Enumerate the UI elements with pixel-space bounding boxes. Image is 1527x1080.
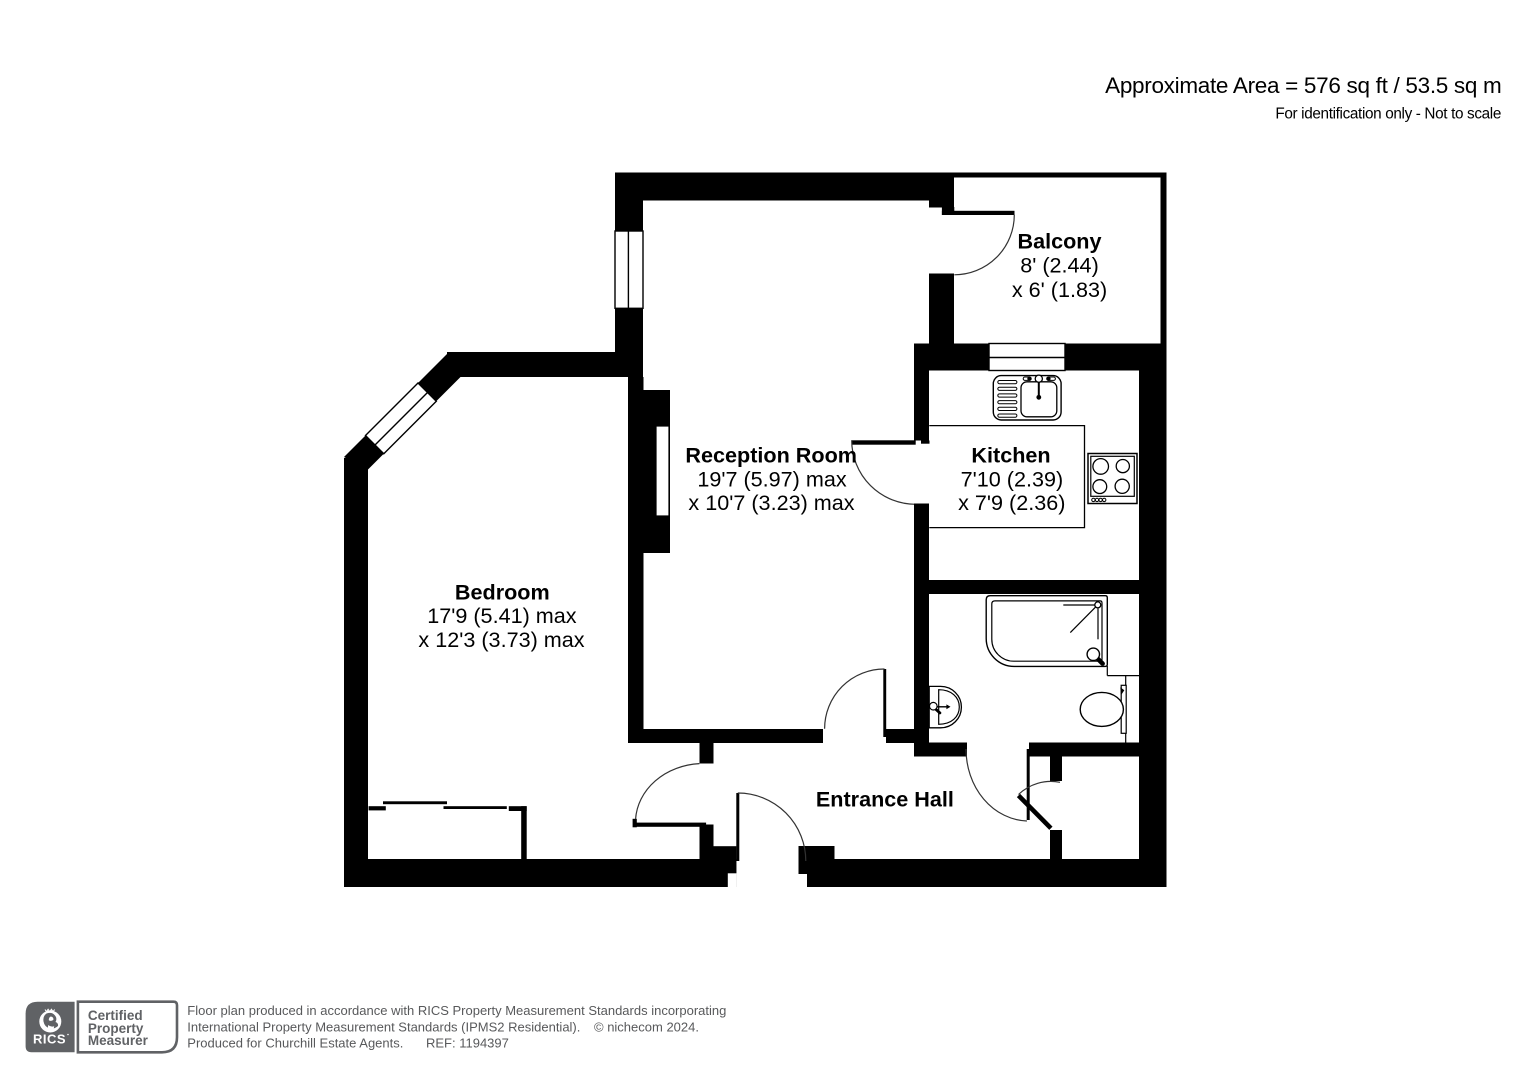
svg-text:19'7 (5.97) max: 19'7 (5.97) max (697, 467, 847, 492)
svg-text:x 12'3 (3.73) max: x 12'3 (3.73) max (418, 627, 584, 652)
svg-text:x 7'9 (2.36): x 7'9 (2.36) (958, 490, 1065, 515)
svg-text:Entrance Hall: Entrance Hall (816, 787, 954, 812)
svg-text:Reception Room: Reception Room (685, 443, 857, 468)
svg-text:x 10'7 (3.23) max: x 10'7 (3.23) max (688, 490, 854, 515)
svg-text:x 6' (1.83): x 6' (1.83) (1012, 277, 1107, 302)
svg-text:17'9 (5.41) max: 17'9 (5.41) max (427, 603, 577, 628)
svg-text:Kitchen: Kitchen (971, 443, 1050, 468)
svg-text:8' (2.44): 8' (2.44) (1020, 252, 1099, 277)
svg-text:Produced for Churchill Estate: Produced for Churchill Estate Agents. (187, 1035, 403, 1050)
svg-text:International Property Measure: International Property Measurement Stand… (187, 1019, 580, 1034)
svg-text:For identification only - Not: For identification only - Not to scale (1275, 106, 1501, 123)
svg-text:Approximate Area = 576 sq ft /: Approximate Area = 576 sq ft / 53.5 sq m (1105, 73, 1501, 98)
svg-text:Floor plan produced in accorda: Floor plan produced in accordance with R… (187, 1003, 726, 1018)
svg-text:Balcony: Balcony (1017, 228, 1101, 253)
svg-text:© nichecom 2024.: © nichecom 2024. (594, 1019, 699, 1034)
svg-text:RICS: RICS (33, 1032, 66, 1047)
svg-text:Measurer: Measurer (88, 1033, 149, 1048)
svg-text:7'10 (2.39): 7'10 (2.39) (961, 466, 1064, 491)
svg-text:Bedroom: Bedroom (455, 580, 550, 605)
svg-text:REF: 1194397: REF: 1194397 (426, 1035, 509, 1050)
